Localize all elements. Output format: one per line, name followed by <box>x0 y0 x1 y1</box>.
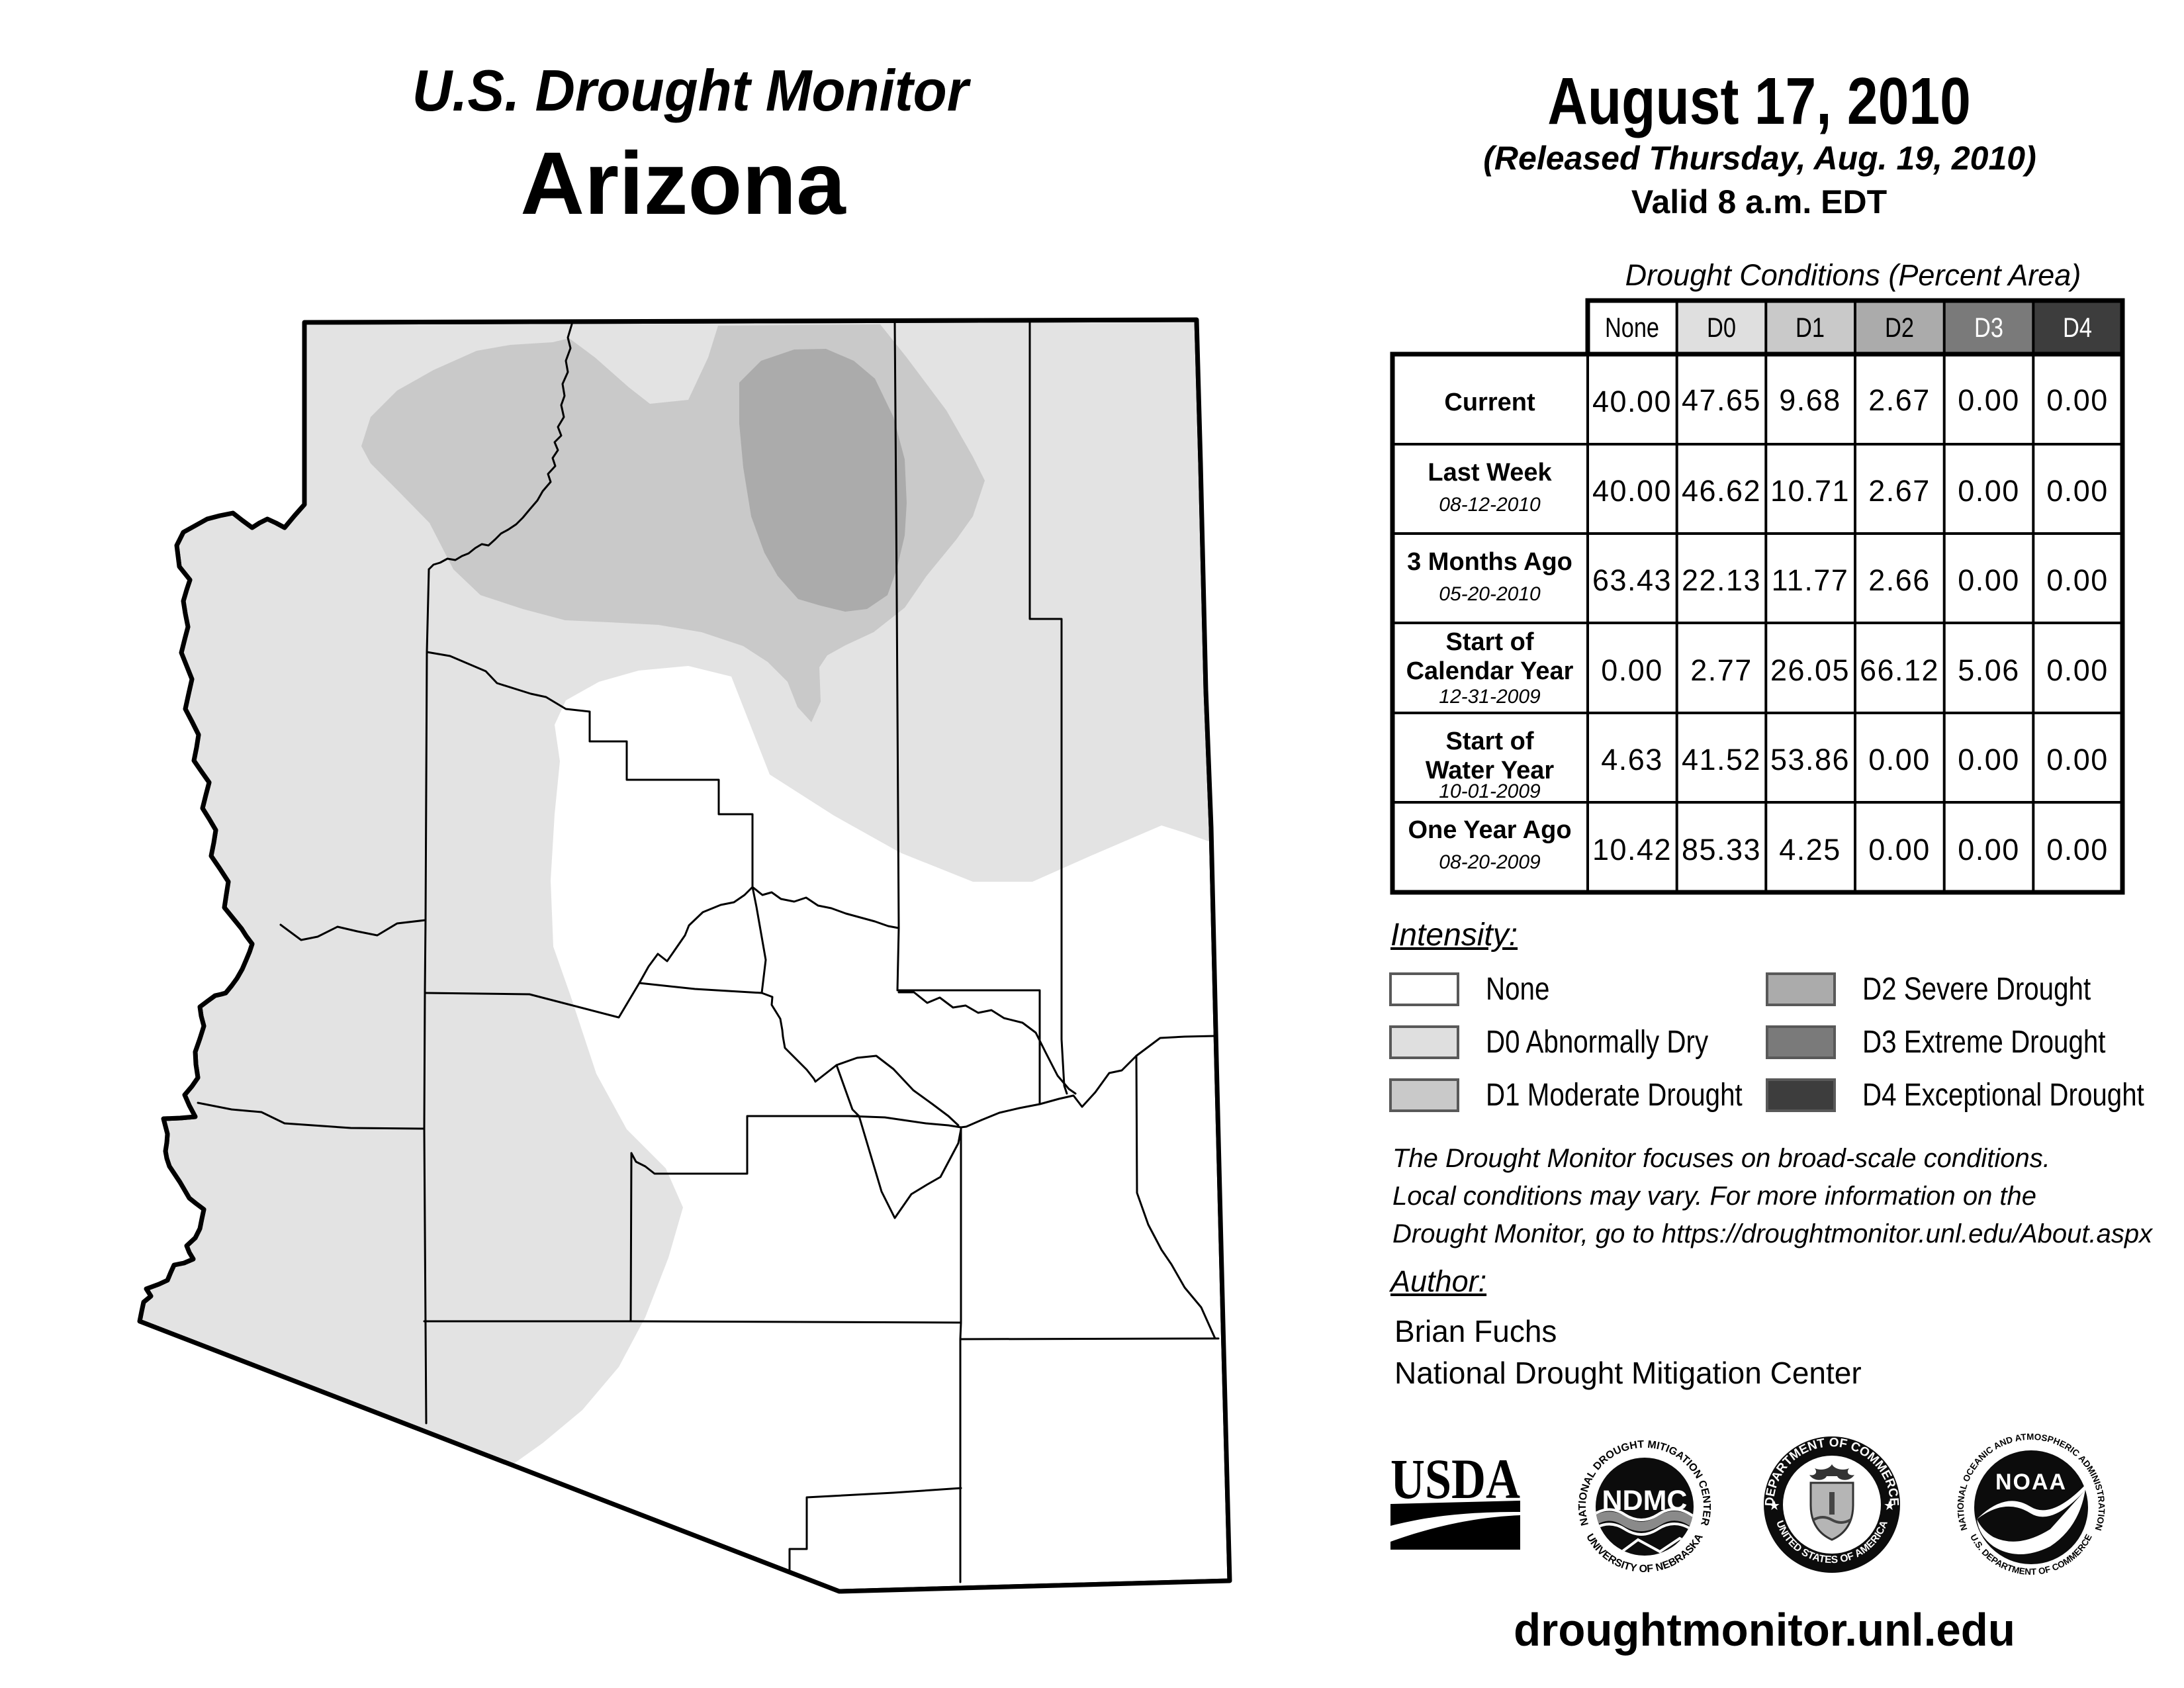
svg-text:Current: Current <box>1444 389 1535 416</box>
svg-text:47.65: 47.65 <box>1682 383 1761 417</box>
svg-text:10.71: 10.71 <box>1770 474 1850 508</box>
svg-text:63.43: 63.43 <box>1592 563 1672 597</box>
svg-text:★: ★ <box>1768 1499 1780 1513</box>
svg-text:26.05: 26.05 <box>1770 653 1850 687</box>
svg-text:53.86: 53.86 <box>1770 743 1850 776</box>
svg-text:10.42: 10.42 <box>1592 833 1672 867</box>
svg-text:0.00: 0.00 <box>1958 563 2020 597</box>
svg-text:4.25: 4.25 <box>1779 833 1841 867</box>
svg-text:One Year Ago: One Year Ago <box>1408 816 1571 844</box>
svg-text:0.00: 0.00 <box>1601 653 1663 687</box>
svg-text:0.00: 0.00 <box>1958 383 2020 417</box>
svg-text:85.33: 85.33 <box>1682 833 1761 867</box>
svg-text:D2: D2 <box>1885 312 1914 343</box>
svg-text:08-20-2009: 08-20-2009 <box>1439 851 1541 873</box>
svg-text:22.13: 22.13 <box>1682 563 1761 597</box>
svg-text:USDA: USDA <box>1390 1447 1520 1511</box>
svg-text:NOAA: NOAA <box>1995 1470 2067 1495</box>
svg-text:Calendar Year: Calendar Year <box>1406 657 1574 685</box>
svg-text:10-01-2009: 10-01-2009 <box>1439 780 1541 802</box>
svg-text:Last Week: Last Week <box>1428 459 1552 487</box>
svg-text:40.00: 40.00 <box>1592 474 1672 508</box>
svg-text:D3: D3 <box>1974 312 2003 343</box>
svg-text:41.52: 41.52 <box>1682 743 1761 776</box>
svg-text:0.00: 0.00 <box>2046 653 2109 687</box>
svg-text:2.67: 2.67 <box>1868 474 1931 508</box>
svg-text:0.00: 0.00 <box>2046 383 2109 417</box>
svg-text:11.77: 11.77 <box>1772 563 1849 597</box>
svg-text:2.77: 2.77 <box>1690 653 1752 687</box>
svg-text:0.00: 0.00 <box>1958 833 2020 867</box>
svg-text:D4: D4 <box>2063 312 2092 343</box>
svg-text:0.00: 0.00 <box>2046 474 2109 508</box>
svg-text:3 Months Ago: 3 Months Ago <box>1407 548 1572 576</box>
svg-text:★: ★ <box>1884 1499 1895 1513</box>
svg-text:05-20-2010: 05-20-2010 <box>1439 583 1541 605</box>
svg-text:5.06: 5.06 <box>1958 653 2020 687</box>
svg-text:4.63: 4.63 <box>1601 743 1663 776</box>
svg-text:2.66: 2.66 <box>1868 563 1931 597</box>
svg-text:9.68: 9.68 <box>1779 383 1841 417</box>
svg-text:Start of: Start of <box>1446 727 1534 755</box>
svg-text:0.00: 0.00 <box>1868 833 1931 867</box>
svg-text:None: None <box>1605 312 1659 343</box>
svg-text:0.00: 0.00 <box>2046 563 2109 597</box>
svg-text:0.00: 0.00 <box>2046 833 2109 867</box>
svg-text:D1: D1 <box>1796 312 1825 343</box>
svg-text:08-12-2010: 08-12-2010 <box>1439 494 1541 516</box>
svg-text:0.00: 0.00 <box>1958 743 2020 776</box>
svg-text:2.67: 2.67 <box>1868 383 1931 417</box>
svg-text:66.12: 66.12 <box>1860 653 1939 687</box>
svg-text:0.00: 0.00 <box>2046 743 2109 776</box>
svg-text:0.00: 0.00 <box>1958 474 2020 508</box>
svg-text:12-31-2009: 12-31-2009 <box>1439 686 1541 708</box>
svg-text:46.62: 46.62 <box>1682 474 1761 508</box>
svg-text:40.00: 40.00 <box>1592 385 1672 418</box>
svg-text:D0: D0 <box>1707 312 1736 343</box>
svg-text:Start of: Start of <box>1446 628 1534 656</box>
svg-text:0.00: 0.00 <box>1868 743 1931 776</box>
